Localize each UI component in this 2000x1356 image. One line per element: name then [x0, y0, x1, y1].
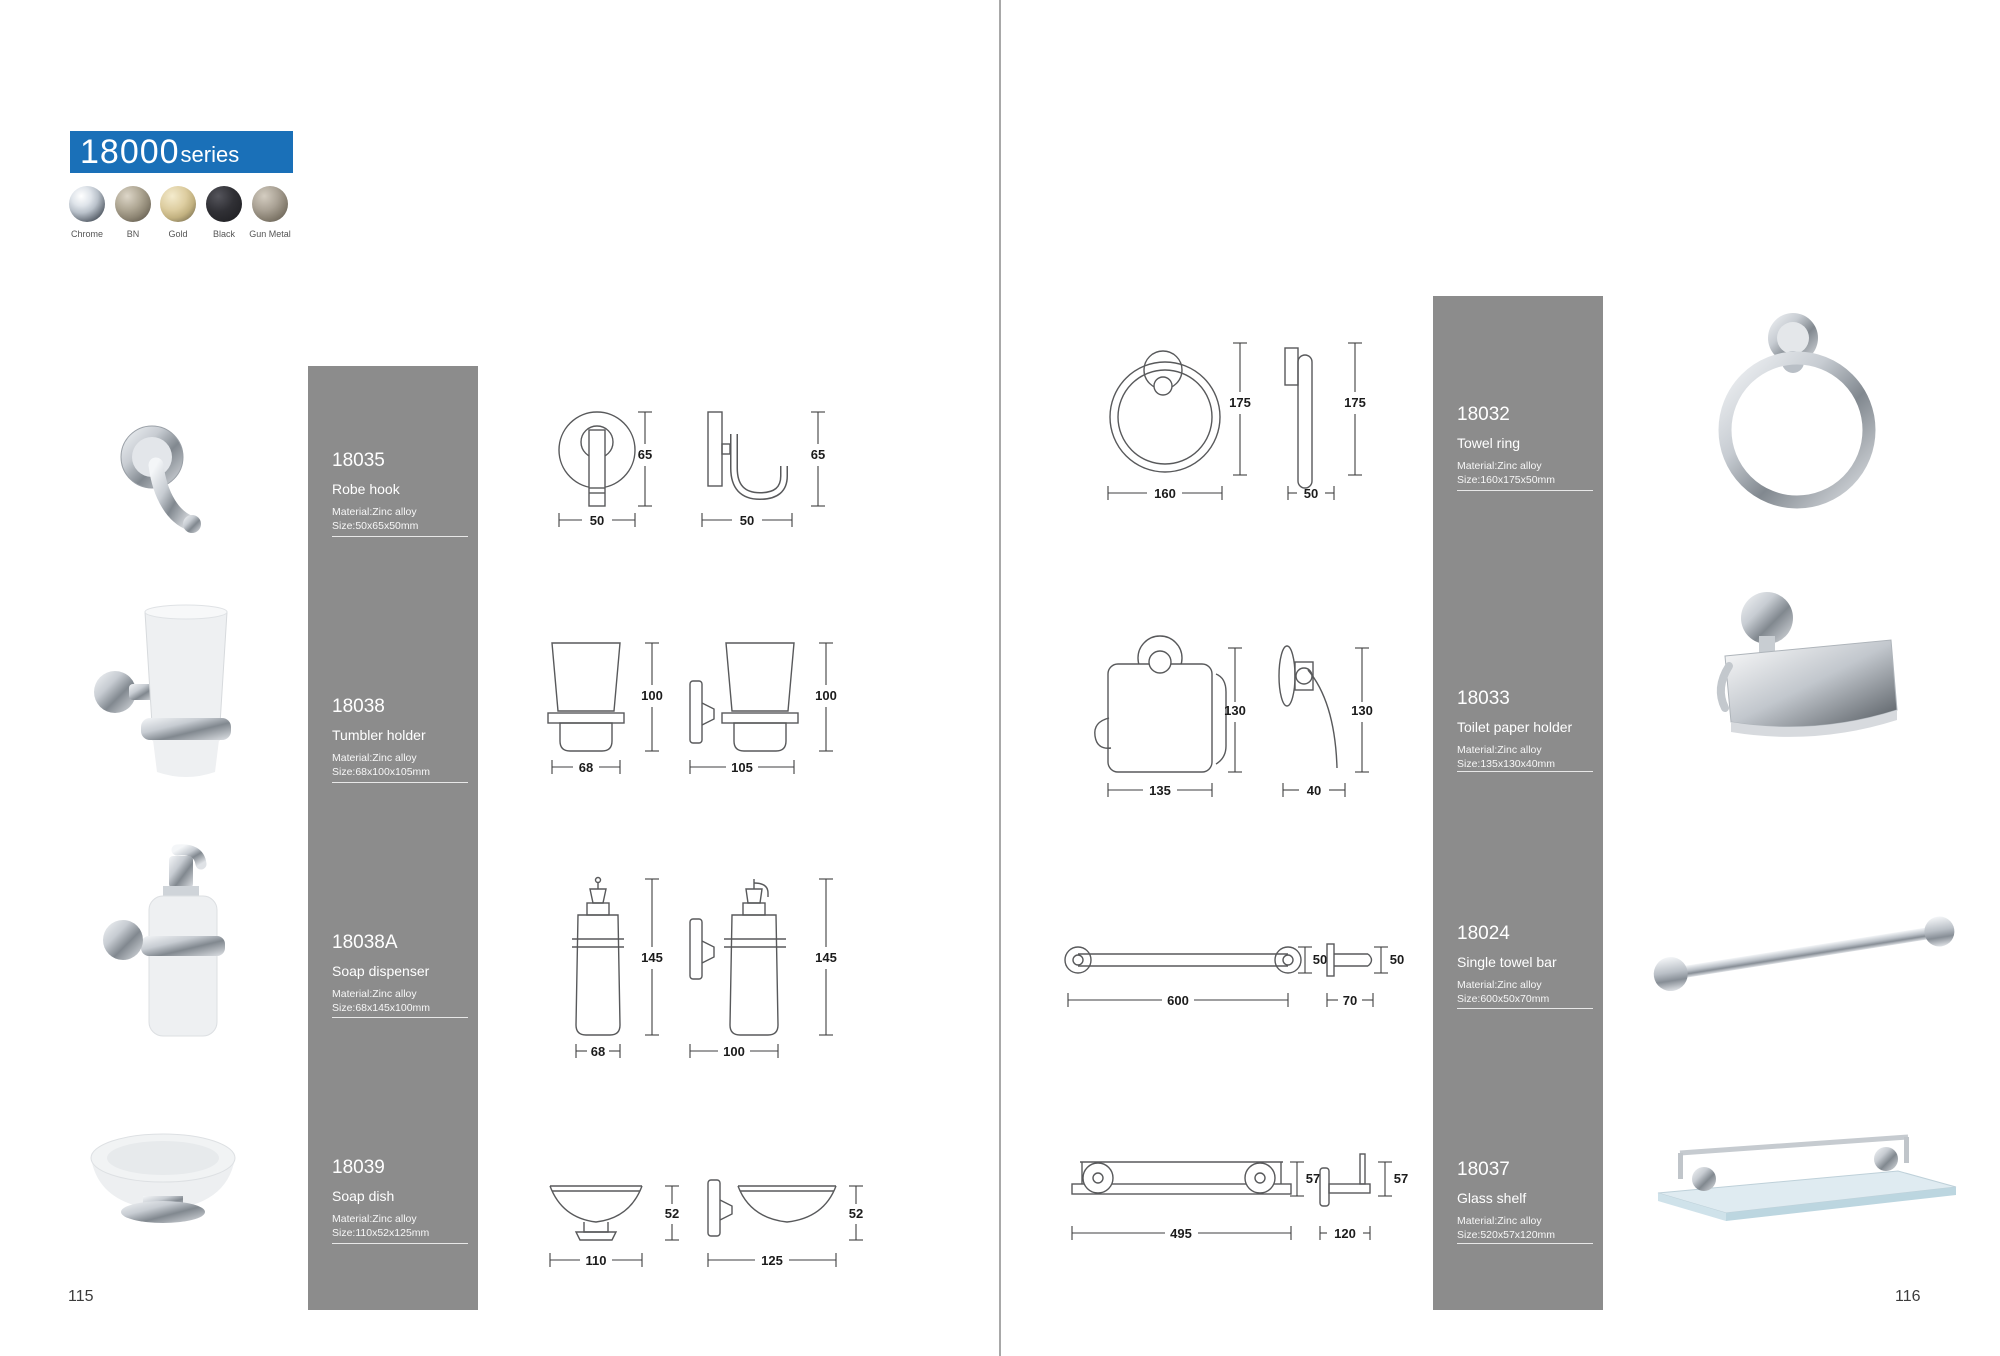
section-divider	[1457, 490, 1593, 491]
front-view	[1072, 1162, 1291, 1194]
robe-hook-photo	[80, 405, 250, 555]
product-material: Material:Zinc alloy	[332, 506, 468, 519]
product-size: Size:600x50x70mm	[1457, 993, 1593, 1006]
product-material: Material:Zinc alloy	[1457, 979, 1593, 992]
section-divider	[1457, 1243, 1593, 1244]
page-number-left: 115	[68, 1288, 94, 1306]
dim-label: 495	[1170, 1226, 1192, 1241]
dim-label: 600	[1167, 993, 1189, 1008]
front-view	[1095, 636, 1226, 772]
dim-label: 68	[579, 760, 593, 775]
product-material: Material:Zinc alloy	[332, 988, 468, 1001]
dimension-front: 100 68	[552, 643, 663, 775]
soap-dish-photo	[65, 1108, 255, 1248]
dim-label: 70	[1343, 993, 1357, 1008]
product-info-18037: 18037 Glass shelf Material:Zinc alloy Si…	[1457, 1160, 1593, 1243]
dim-label: 125	[761, 1253, 783, 1268]
section-divider	[332, 782, 468, 783]
product-size: Size:50x65x50mm	[332, 520, 468, 533]
front-view	[559, 412, 635, 506]
dimension-side: 175 50	[1288, 343, 1366, 501]
finish-label: Gun Metal	[235, 229, 305, 239]
dim-label: 50	[1313, 952, 1327, 967]
finish-swatch-chrome	[69, 186, 105, 222]
product-info-18038: 18038 Tumbler holder Material:Zinc alloy…	[332, 697, 468, 780]
dim-label: 52	[849, 1206, 863, 1221]
product-size: Size:110x52x125mm	[332, 1227, 468, 1240]
finish-swatch-gold	[160, 186, 196, 222]
product-info-column-left: 18035 Robe hook Material:Zinc alloy Size…	[308, 366, 478, 1310]
dimension-front: 50 600	[1068, 947, 1327, 1008]
dim-label: 145	[815, 950, 837, 965]
dim-label: 160	[1154, 486, 1176, 501]
front-view	[550, 1186, 642, 1240]
product-code: 18033	[1457, 689, 1593, 710]
product-code: 18035	[332, 451, 468, 472]
section-divider	[1457, 771, 1593, 772]
side-view	[708, 412, 784, 496]
product-name: Single towel bar	[1457, 955, 1593, 970]
dim-label: 65	[811, 447, 825, 462]
soap-dispenser-photo	[85, 828, 265, 1048]
dim-label: 57	[1394, 1171, 1408, 1186]
tumbler-holder-photo	[85, 600, 255, 790]
dimension-side: 52 125	[708, 1186, 863, 1268]
product-info-18039: 18039 Soap dish Material:Zinc alloy Size…	[332, 1158, 468, 1241]
dim-label: 175	[1344, 395, 1366, 410]
series-number: 18000	[80, 135, 180, 169]
product-material: Material:Zinc alloy	[1457, 1215, 1593, 1228]
side-view	[1279, 646, 1337, 768]
dimension-front: 175 160	[1108, 343, 1251, 501]
front-view	[572, 878, 624, 1036]
page-gutter-divider	[999, 0, 1001, 1356]
dim-label: 105	[731, 760, 753, 775]
product-name: Soap dispenser	[332, 964, 468, 979]
section-divider	[332, 1243, 468, 1244]
product-name: Towel ring	[1457, 436, 1593, 451]
single-towel-bar-photo	[1645, 890, 1975, 1015]
dim-label: 50	[1390, 952, 1404, 967]
product-code: 18038	[332, 697, 468, 718]
product-name: Soap dish	[332, 1189, 468, 1204]
product-info-column-right: 18032 Towel ring Material:Zinc alloy Siz…	[1433, 296, 1603, 1310]
side-view	[690, 879, 786, 1035]
dim-label: 175	[1229, 395, 1251, 410]
dim-label: 120	[1334, 1226, 1356, 1241]
product-name: Tumbler holder	[332, 728, 468, 743]
product-info-18038A: 18038A Soap dispenser Material:Zinc allo…	[332, 933, 468, 1016]
soap-dish-drawing: 52 110 52 125	[540, 1148, 870, 1283]
product-code: 18037	[1457, 1160, 1593, 1181]
product-size: Size:68x145x100mm	[332, 1002, 468, 1015]
dim-label: 52	[665, 1206, 679, 1221]
section-divider	[1457, 1008, 1593, 1009]
product-name: Glass shelf	[1457, 1191, 1593, 1206]
section-divider	[332, 1017, 468, 1018]
finish-swatch-black	[206, 186, 242, 222]
product-code: 18024	[1457, 924, 1593, 945]
product-name: Robe hook	[332, 482, 468, 497]
product-code: 18032	[1457, 405, 1593, 426]
dim-label: 65	[638, 447, 652, 462]
catalog-spread: 18000 series Chrome BN Gold Black Gun Me…	[0, 0, 2000, 1356]
product-info-18033: 18033 Toilet paper holder Material:Zinc …	[1457, 689, 1593, 772]
dimension-side: 130 40	[1283, 648, 1373, 798]
dim-label: 130	[1351, 703, 1373, 718]
dim-label: 50	[740, 513, 754, 528]
dim-label: 50	[590, 513, 604, 528]
product-material: Material:Zinc alloy	[1457, 460, 1593, 473]
dimension-side: 65 50	[702, 412, 825, 528]
product-size: Size:160x175x50mm	[1457, 474, 1593, 487]
single-towel-bar-drawing: 50 600 50 70	[1060, 932, 1420, 1017]
product-info-18024: 18024 Single towel bar Material:Zinc all…	[1457, 924, 1593, 1007]
product-size: Size:68x100x105mm	[332, 766, 468, 779]
side-view	[708, 1180, 836, 1236]
dim-label: 100	[815, 688, 837, 703]
towel-ring-drawing: 175 160 175 50	[1085, 328, 1385, 518]
product-info-18032: 18032 Towel ring Material:Zinc alloy Siz…	[1457, 405, 1593, 488]
side-view	[1320, 1154, 1370, 1206]
side-view	[1327, 944, 1372, 976]
dim-label: 40	[1307, 783, 1321, 798]
dim-label: 100	[641, 688, 663, 703]
dim-label: 130	[1224, 703, 1246, 718]
dim-label: 68	[591, 1044, 605, 1059]
dimension-side: 145 100	[690, 879, 837, 1059]
product-size: Size:135x130x40mm	[1457, 758, 1593, 771]
soap-dispenser-drawing: 145 68 145 100	[540, 875, 870, 1065]
dim-label: 50	[1304, 486, 1318, 501]
product-size: Size:520x57x120mm	[1457, 1229, 1593, 1242]
dimension-side: 100 105	[690, 643, 837, 775]
product-material: Material:Zinc alloy	[332, 1213, 468, 1226]
glass-shelf-photo	[1640, 1115, 1970, 1255]
finish-swatch-bn	[115, 186, 151, 222]
product-info-18035: 18035 Robe hook Material:Zinc alloy Size…	[332, 451, 468, 534]
front-view	[1110, 351, 1220, 472]
page-number-right: 116	[1895, 1288, 1921, 1306]
side-view	[1285, 348, 1312, 488]
product-code: 18039	[332, 1158, 468, 1179]
product-name: Toilet paper holder	[1457, 720, 1593, 735]
series-word: series	[181, 144, 240, 166]
product-code: 18038A	[332, 933, 468, 954]
finish-swatch-gunmetal	[252, 186, 288, 222]
tumbler-holder-drawing: 100 68 100 105	[540, 633, 870, 783]
product-material: Material:Zinc alloy	[1457, 744, 1593, 757]
toilet-paper-holder-drawing: 130 135 130 40	[1085, 618, 1385, 798]
glass-shelf-drawing: 57 495 57 120	[1055, 1138, 1425, 1253]
dimension-side: 57 120	[1320, 1162, 1408, 1241]
dim-label: 100	[723, 1044, 745, 1059]
side-view	[690, 643, 798, 751]
dim-label: 110	[586, 1253, 607, 1268]
front-view	[548, 643, 624, 751]
dimension-side: 50 70	[1327, 947, 1404, 1008]
front-view	[1065, 947, 1301, 973]
dim-label: 135	[1149, 783, 1171, 798]
toilet-paper-holder-photo	[1695, 570, 1925, 775]
series-banner: 18000 series	[70, 131, 293, 173]
dim-label: 145	[641, 950, 663, 965]
section-divider	[332, 536, 468, 537]
dimension-front: 52 110	[550, 1186, 679, 1268]
towel-ring-photo	[1695, 300, 1905, 515]
dim-label: 57	[1306, 1171, 1320, 1186]
robe-hook-drawing: 65 50 65 50	[540, 402, 870, 532]
product-material: Material:Zinc alloy	[332, 752, 468, 765]
